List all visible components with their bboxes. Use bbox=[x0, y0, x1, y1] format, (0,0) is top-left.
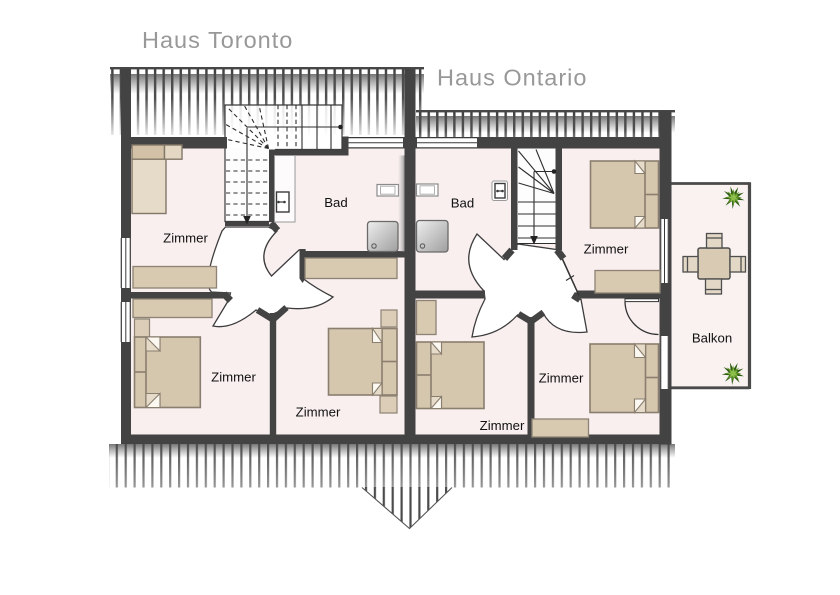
svg-text:Haus Toronto: Haus Toronto bbox=[142, 27, 293, 53]
svg-text:Zimmer: Zimmer bbox=[211, 370, 256, 385]
svg-text:Bad: Bad bbox=[451, 196, 474, 211]
svg-text:Bad: Bad bbox=[324, 195, 347, 210]
svg-text:Haus Ontario: Haus Ontario bbox=[437, 65, 587, 91]
svg-text:Zimmer: Zimmer bbox=[539, 371, 584, 386]
svg-text:Zimmer: Zimmer bbox=[584, 242, 629, 257]
svg-text:Zimmer: Zimmer bbox=[480, 418, 525, 433]
svg-text:Balkon: Balkon bbox=[692, 331, 732, 346]
svg-text:Zimmer: Zimmer bbox=[163, 231, 208, 246]
svg-text:Zimmer: Zimmer bbox=[296, 405, 341, 420]
